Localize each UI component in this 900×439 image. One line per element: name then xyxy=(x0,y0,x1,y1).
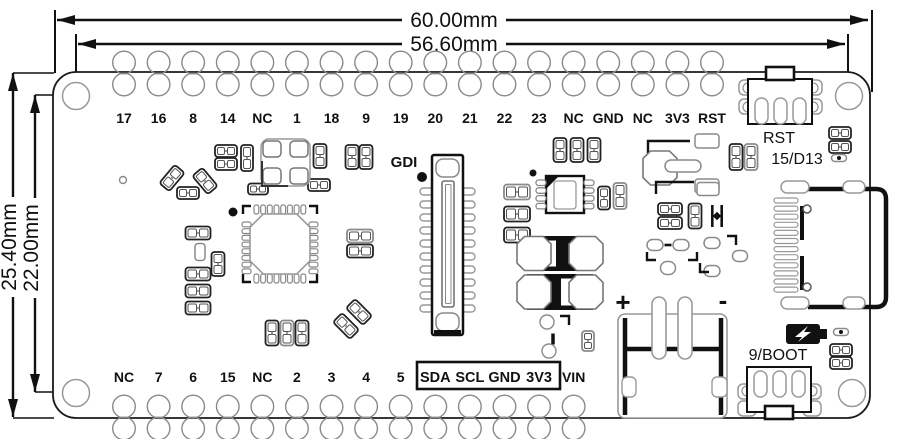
power-rail-label: GND xyxy=(488,370,520,386)
passive-component xyxy=(215,145,237,157)
qfn-pad xyxy=(288,274,293,283)
qfn-pad xyxy=(242,269,251,274)
smd-pad xyxy=(733,251,748,262)
pin-pad xyxy=(701,51,724,74)
gdi-slot xyxy=(446,185,452,304)
top-pin-label: RST xyxy=(698,110,726,126)
top-pin-label: 18 xyxy=(324,110,340,126)
qfn-pad xyxy=(267,205,272,214)
mounting-hole-bottom-left xyxy=(63,380,90,407)
soic-pin xyxy=(536,188,546,194)
soic-pin xyxy=(536,180,546,186)
led-pin-label: 15/D13 xyxy=(771,151,823,168)
gdi-tab xyxy=(436,313,459,331)
pin-pad xyxy=(493,51,516,74)
top-pin-label: NC xyxy=(252,110,272,126)
usb-finger-pad xyxy=(774,222,798,227)
pin-pad xyxy=(666,51,689,74)
top-pin-label: 3V3 xyxy=(665,110,690,126)
top-pin-label: GND xyxy=(593,110,624,126)
passive-component xyxy=(186,268,211,281)
pin-pad xyxy=(528,417,551,439)
bottom-pin-label: 7 xyxy=(155,369,163,385)
smd-pad xyxy=(697,183,719,196)
gdi-label: GDI xyxy=(391,154,418,171)
bottom-pin-label: 4 xyxy=(362,369,370,385)
qfn-pad xyxy=(254,205,259,214)
passive-component xyxy=(360,145,373,169)
top-pin-label: 23 xyxy=(531,110,547,126)
usb-finger-pad xyxy=(774,214,798,219)
passive-component xyxy=(347,230,373,243)
pin-pad xyxy=(147,417,170,439)
passive-component xyxy=(598,187,610,210)
smd-pad xyxy=(665,160,701,172)
passive-component xyxy=(241,145,253,171)
passive-component xyxy=(658,203,682,215)
usb-finger-pad xyxy=(774,247,798,252)
gdi-bottom-bar xyxy=(434,330,461,335)
qfn-pad xyxy=(267,274,272,283)
passive-component xyxy=(554,138,567,162)
pin-pad xyxy=(216,51,239,74)
pin-pad xyxy=(251,51,274,74)
passive-component xyxy=(830,344,852,356)
pin-pad xyxy=(562,417,585,439)
usb-finger-pad xyxy=(774,198,798,203)
pin-pad xyxy=(320,51,343,74)
bottom-pin-label: 6 xyxy=(189,369,197,385)
top-pin-label: 17 xyxy=(116,110,132,126)
pin-pad xyxy=(147,51,170,74)
passive-component xyxy=(346,145,359,169)
pin1-marker-dot xyxy=(417,172,427,182)
passive-component xyxy=(571,138,584,162)
pin1-marker-dot xyxy=(530,170,537,177)
top-pin-label: 19 xyxy=(393,110,409,126)
qfn-pad xyxy=(281,274,286,283)
passive-component xyxy=(829,127,851,139)
passive-component xyxy=(614,183,627,209)
gdi-tab xyxy=(436,159,459,177)
usb-finger-pad xyxy=(774,255,798,260)
usb-finger-pad xyxy=(774,287,798,292)
passive-component xyxy=(215,158,237,170)
pin-pad xyxy=(113,417,136,439)
top-pin-label: 9 xyxy=(362,110,370,126)
passive-component xyxy=(186,285,211,298)
silkscreen-bar xyxy=(665,244,672,247)
bottom-pin-label: NC xyxy=(114,369,134,385)
usb-finger-pad xyxy=(774,271,798,276)
crystal-oscillator xyxy=(261,139,310,186)
power-rail-label: SCL xyxy=(455,370,484,386)
qfn-pad xyxy=(294,205,299,214)
usb-finger-pad xyxy=(774,263,798,268)
usb-finger-pad xyxy=(774,206,798,211)
qfn-body xyxy=(250,214,310,274)
passive-component xyxy=(212,252,225,276)
qfn-pad xyxy=(274,274,279,283)
pin-pad xyxy=(493,417,516,439)
qfn-pad xyxy=(261,205,266,214)
pin-pad xyxy=(251,417,274,439)
bottom-pin-label: 15 xyxy=(220,369,236,385)
top-pin-label: NC xyxy=(633,110,653,126)
top-pin-label: 22 xyxy=(497,110,513,126)
arrowhead-down-icon xyxy=(8,399,18,417)
dimension-label-height-outer: 25.40mm xyxy=(0,203,21,291)
passive-component xyxy=(730,144,743,170)
top-pin-label: 1 xyxy=(293,110,301,126)
passive-component xyxy=(582,331,594,351)
top-pin-label: 16 xyxy=(151,110,167,126)
qfn-pad xyxy=(274,205,279,214)
usb-finger-pad xyxy=(774,230,798,235)
passive-component xyxy=(296,321,309,346)
qfn-pad xyxy=(309,222,318,227)
pin-pad xyxy=(355,51,378,74)
passive-component xyxy=(504,185,530,200)
qfn-pad xyxy=(301,274,306,283)
soic-pin xyxy=(584,180,594,186)
mounting-hole-bottom-right xyxy=(839,380,866,407)
arrowhead-right-icon xyxy=(827,39,845,49)
qfn-pad xyxy=(309,269,318,274)
passive-component xyxy=(281,321,294,346)
arrowhead-right-icon xyxy=(850,15,868,25)
octagon-pad xyxy=(517,237,551,271)
pin-pad xyxy=(389,51,412,74)
pin-pad xyxy=(286,51,309,74)
qfn-pad xyxy=(261,274,266,283)
qfn-pad xyxy=(309,262,318,267)
boot-button-label: 9/BOOT xyxy=(749,347,808,364)
pin-pad xyxy=(389,417,412,439)
qfn-pad xyxy=(254,274,259,283)
pin1-marker-dot xyxy=(837,156,841,160)
pcb-dimension-drawing: 60.00mm 56.60mm 25.40mm 22.00mm xyxy=(0,0,900,439)
passive-component xyxy=(266,321,279,346)
passive-component xyxy=(829,141,851,153)
soic-pin xyxy=(536,203,546,209)
passive-component xyxy=(186,227,211,240)
smd-pad xyxy=(661,262,676,275)
bottom-pin-label: NC xyxy=(252,369,272,385)
smd-pad xyxy=(704,238,720,249)
pcb-drawing-canvas: 60.00mm 56.60mm 25.40mm 22.00mm xyxy=(0,0,900,439)
arrowhead-up-icon xyxy=(30,95,40,113)
top-pin-label: 21 xyxy=(462,110,478,126)
passive-component xyxy=(689,204,702,229)
battery-plus-label: + xyxy=(615,287,630,317)
qfn-pad xyxy=(242,222,251,227)
soic-pin xyxy=(584,188,594,194)
pin1-marker-dot xyxy=(229,208,238,217)
pin-pad xyxy=(632,51,655,74)
pin-pad xyxy=(597,51,620,74)
pin-pad xyxy=(216,417,239,439)
soic-pin xyxy=(584,196,594,202)
pin-pad xyxy=(286,417,309,439)
passive-component xyxy=(745,144,758,170)
dimension-label-width-inner: 56.60mm xyxy=(410,33,498,56)
usb-finger-pad xyxy=(774,239,798,244)
smd-pad xyxy=(195,244,205,261)
pin-pad xyxy=(355,417,378,439)
passive-component xyxy=(658,217,682,229)
pin-pad xyxy=(528,51,551,74)
passive-component xyxy=(308,179,330,191)
dimension-label-height-inner: 22.00mm xyxy=(20,204,43,292)
arrowhead-up-icon xyxy=(8,73,18,91)
pin-pad xyxy=(459,417,482,439)
pin-pad xyxy=(424,417,447,439)
battery-minus-label: - xyxy=(719,285,728,315)
bottom-pin-label: VIN xyxy=(562,369,585,385)
mounting-hole-top-left xyxy=(63,83,90,110)
arrowhead-left-icon xyxy=(78,39,96,49)
reset-button-label: RST xyxy=(763,130,795,147)
silkscreen-bar xyxy=(551,334,555,345)
bottom-pin-label: 2 xyxy=(293,369,301,385)
passive-component xyxy=(504,207,530,222)
power-rail-label: 3V3 xyxy=(526,370,552,386)
smd-pad xyxy=(647,240,663,251)
qfn-pad xyxy=(294,274,299,283)
dimension-label-width-outer: 60.00mm xyxy=(410,9,498,32)
pin-pad xyxy=(182,51,205,74)
pin-pad xyxy=(182,417,205,439)
pin-pad xyxy=(113,51,136,74)
smd-pad xyxy=(673,240,689,251)
passive-component xyxy=(186,302,211,315)
octagon-pad xyxy=(569,237,603,271)
passive-component xyxy=(830,357,852,369)
qfn-pad xyxy=(242,262,251,267)
passive-component xyxy=(347,245,373,258)
soic-pin xyxy=(584,203,594,209)
soic-pin xyxy=(536,196,546,202)
smd-pad xyxy=(695,134,719,148)
top-pin-label: 14 xyxy=(220,110,236,126)
top-pin-label: 20 xyxy=(428,110,444,126)
arrowhead-down-icon xyxy=(30,374,40,392)
pin-pad xyxy=(562,51,585,74)
top-pin-label: 8 xyxy=(189,110,197,126)
passive-component xyxy=(588,138,601,162)
pin-pad xyxy=(320,417,343,439)
qfn-pad xyxy=(288,205,293,214)
pin1-marker-dot xyxy=(839,330,843,334)
qfn-pad xyxy=(301,205,306,214)
power-rail-label: SDA xyxy=(420,370,451,386)
passive-component xyxy=(314,144,327,168)
passive-component xyxy=(177,187,199,199)
arrowhead-left-icon xyxy=(57,15,75,25)
usb-finger-pad xyxy=(774,279,798,284)
octagon-pad xyxy=(569,275,603,309)
bottom-pin-label: 5 xyxy=(397,369,405,385)
top-pin-label: NC xyxy=(564,110,584,126)
bottom-pin-label: 3 xyxy=(328,369,336,385)
octagon-pad xyxy=(517,275,551,309)
qfn-pad xyxy=(281,205,286,214)
mounting-hole-top-right xyxy=(836,83,863,110)
